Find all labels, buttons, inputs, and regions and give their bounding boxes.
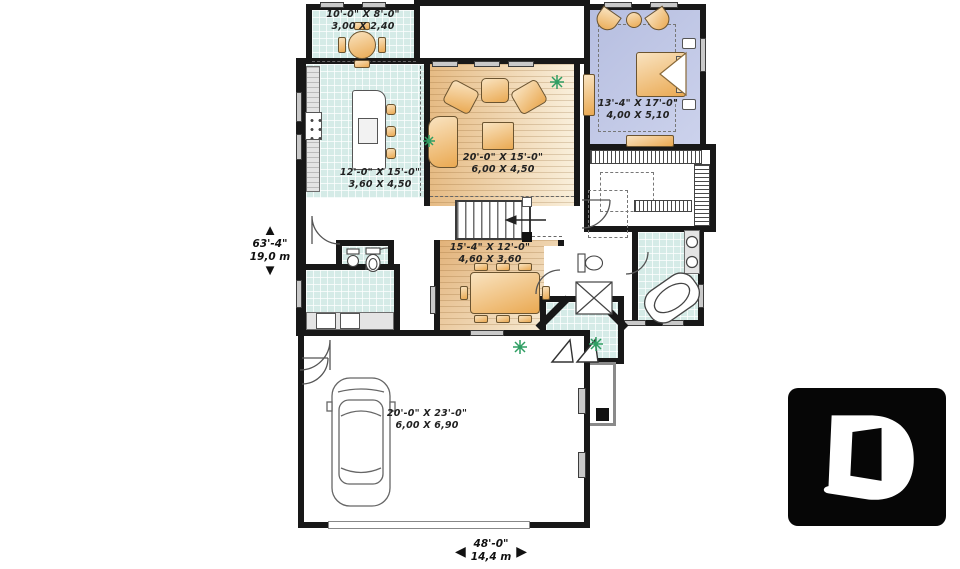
closet-rod — [590, 150, 702, 164]
coffee-table — [482, 122, 514, 150]
window — [508, 61, 534, 67]
window — [474, 61, 500, 67]
pillow — [676, 77, 683, 93]
bar-stool — [386, 126, 396, 137]
window — [624, 320, 646, 326]
logo-d-icon — [815, 405, 919, 509]
room-dim-metric: 4,60 X 3,60 — [432, 254, 548, 266]
overall-width-imperial: 48'-0" — [471, 538, 512, 551]
stair-newel — [522, 232, 532, 242]
room-dim-imperial: 15'-4" X 12'-0" — [432, 242, 548, 254]
overall-depth-imperial: 63'-4" — [240, 238, 300, 251]
side-table — [626, 12, 642, 28]
stove — [305, 112, 322, 140]
room-dim-imperial: 13'-4" X 17'-0" — [585, 98, 691, 110]
room-dim-imperial: 20'-0" X 15'-0" — [448, 152, 558, 164]
window — [320, 2, 344, 8]
label-living: 20'-0" X 15'-0" 6,00 X 4,50 — [448, 152, 558, 176]
closet-rod — [634, 200, 692, 212]
window — [362, 2, 386, 8]
room-dim-metric: 4,00 X 5,10 — [585, 110, 691, 122]
island-sink — [358, 118, 378, 144]
window — [662, 320, 684, 326]
window — [698, 284, 704, 308]
stair-newel — [522, 197, 532, 207]
room-dim-metric: 3,60 X 4,50 — [328, 179, 432, 191]
porch-column — [596, 408, 609, 421]
staircase — [455, 200, 531, 240]
room-dim-metric: 6,00 X 4,50 — [448, 164, 558, 176]
garage-door — [328, 521, 530, 529]
dimension-arrow-left-icon: ◀ — [455, 543, 466, 560]
room-deck — [414, 0, 590, 64]
dining-chair — [518, 315, 532, 323]
label-garage: 20'-0" X 23'-0" 6,00 X 6,90 — [370, 408, 484, 432]
floor-plan-page: 10'-0" X 8'-0" 3,00 X 2,40 12'-0" X 15'-… — [0, 0, 960, 569]
overall-width-metric: 14,4 m — [471, 551, 512, 564]
window — [296, 92, 302, 122]
window — [430, 286, 436, 314]
bar-stool — [386, 148, 396, 159]
window — [578, 388, 586, 414]
room-dim-imperial: 12'-0" X 15'-0" — [328, 167, 432, 179]
entry-ceiling-line — [588, 190, 628, 238]
dining-chair — [496, 315, 510, 323]
washer — [316, 313, 336, 329]
armchair — [481, 78, 509, 103]
window — [296, 280, 302, 308]
nook-chair — [354, 60, 370, 68]
window — [296, 134, 302, 160]
bath-vanity — [684, 230, 700, 274]
window — [700, 38, 706, 72]
label-kitchen: 12'-0" X 15'-0" 3,60 X 4,50 — [328, 167, 432, 191]
nook-chair — [338, 37, 346, 53]
label-bedroom: 13'-4" X 17'-0" 4,00 X 5,10 — [585, 98, 691, 122]
brand-logo — [788, 388, 946, 526]
room-dim-imperial: 10'-0" X 8'-0" — [308, 9, 418, 21]
stairs-entry-divider — [532, 236, 562, 237]
window — [578, 452, 586, 478]
dimension-arrow-right-icon: ▶ — [516, 543, 527, 560]
window — [470, 330, 504, 336]
room-dim-metric: 6,00 X 6,90 — [370, 420, 484, 432]
dining-chair — [460, 286, 468, 300]
label-breakfast-nook: 10'-0" X 8'-0" 3,00 X 2,40 — [308, 9, 418, 33]
nook-table — [348, 31, 376, 59]
nook-chair — [378, 37, 386, 53]
window — [432, 61, 458, 67]
room-dim-imperial: 20'-0" X 23'-0" — [370, 408, 484, 420]
nightstand — [682, 38, 696, 49]
living-hall-divider — [430, 196, 574, 197]
overall-depth-dimension: ▲ 63'-4" 19,0 m ▼ — [240, 224, 300, 278]
dimension-arrow-down-icon: ▼ — [240, 264, 300, 278]
room-dim-metric: 3,00 X 2,40 — [308, 21, 418, 33]
closet-rod — [694, 164, 710, 226]
bar-stool — [386, 104, 396, 115]
dresser — [626, 135, 674, 147]
dryer — [340, 313, 360, 329]
dining-chair — [542, 286, 550, 300]
dimension-arrow-up-icon: ▲ — [240, 224, 300, 238]
dining-chair — [474, 315, 488, 323]
overall-width-dimension: ◀ 48'-0" 14,4 m ▶ — [455, 538, 527, 564]
label-dining: 15'-4" X 12'-0" 4,60 X 3,60 — [432, 242, 548, 266]
window — [604, 2, 632, 8]
pillow — [676, 56, 683, 72]
dining-table — [470, 272, 540, 314]
